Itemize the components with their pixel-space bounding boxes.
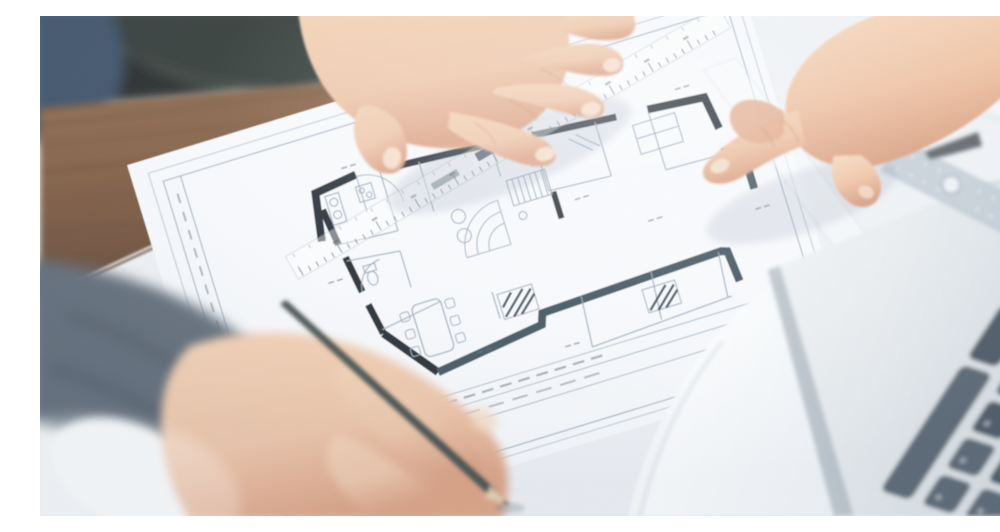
photo-grain [40, 16, 1000, 516]
photo-canvas [40, 16, 1000, 516]
photo-architects-reviewing-blueprint: Close-up of an architects' worktable whe… [40, 16, 1000, 516]
